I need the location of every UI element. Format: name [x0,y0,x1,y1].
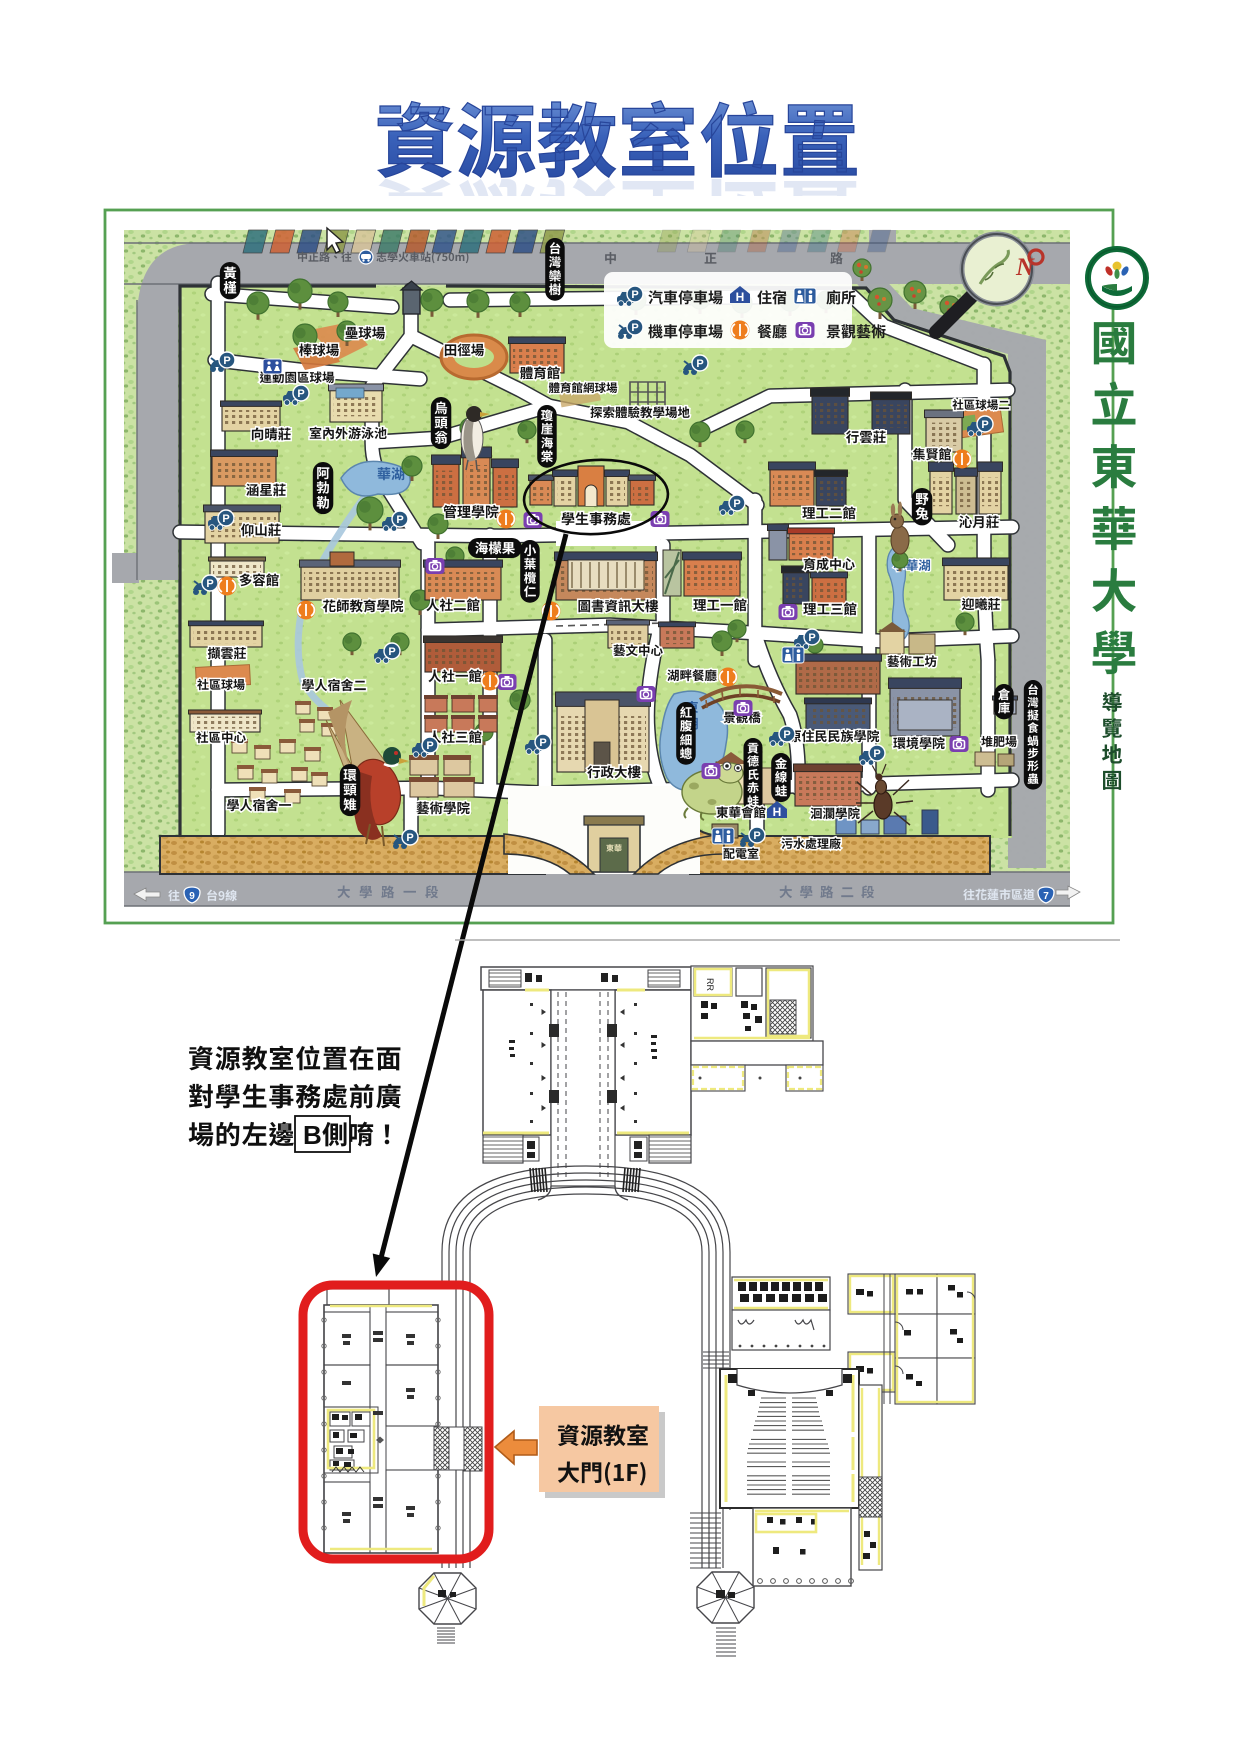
svg-text:仰山莊: 仰山莊 [241,519,282,539]
svg-text:正: 正 [704,248,717,267]
svg-text:大學路一段: 大學路一段 [337,881,447,901]
svg-text:探索體驗教學場地: 探索體驗教學場地 [590,402,691,421]
svg-text:東華: 東華 [606,843,622,854]
svg-text:P: P [873,748,880,760]
svg-text:野兔: 野兔 [915,488,929,523]
svg-text:金線蛙: 金線蛙 [775,753,788,799]
svg-text:對學生事務處前廣: 對學生事務處前廣 [188,1077,402,1114]
svg-text:側唷！: 側唷！ [322,1115,400,1152]
svg-text:導覽地圖: 導覽地圖 [1102,687,1123,795]
svg-text:P: P [223,355,230,367]
svg-text:7: 7 [1043,891,1049,902]
svg-text:黃槿: 黃槿 [223,262,237,297]
svg-text:人社一館: 人社一館 [428,665,482,685]
svg-text:P: P [808,632,815,644]
svg-text:藝術工坊: 藝術工坊 [887,651,938,670]
svg-text:資源教室: 資源教室 [557,1417,649,1451]
svg-text:行雲莊: 行雲莊 [846,426,887,446]
svg-text:倉庫: 倉庫 [998,684,1011,717]
svg-text:國立東華大學: 國立東華大學 [1091,305,1138,684]
svg-text:P: P [206,578,213,590]
svg-text:藝文中心: 藝文中心 [613,640,664,659]
svg-text:環境學院: 環境學院 [893,733,945,752]
svg-text:P: P [733,498,740,510]
svg-text:涵星莊: 涵星莊 [246,479,287,499]
svg-text:社區球場二: 社區球場二 [952,397,1010,413]
svg-text:體育館: 體育館 [520,362,561,382]
svg-text:中正路、往: 中正路、往 [297,249,352,265]
svg-text:P: P [388,646,395,658]
svg-text:理工一館: 理工一館 [693,594,747,614]
svg-text:小葉欖仁: 小葉欖仁 [524,540,537,600]
svg-text:汽車停車場: 汽車停車場 [648,287,723,308]
svg-text:P: P [297,388,304,400]
svg-text:機車停車場: 機車停車場 [648,321,723,342]
svg-text:住宿: 住宿 [757,287,787,308]
svg-text:大門(1F): 大門(1F) [557,1454,647,1488]
svg-text:9: 9 [189,891,195,902]
svg-text:P: P [783,729,790,741]
svg-text:P: P [426,740,433,752]
svg-text:行政大樓: 行政大樓 [587,761,641,781]
svg-text:棒球場: 棒球場 [299,339,340,359]
svg-text:P: P [406,832,413,844]
svg-text:花師教育學院: 花師教育學院 [323,595,404,615]
svg-text:室內外游泳池: 室內外游泳池 [309,423,387,442]
svg-text:迎曦莊: 迎曦莊 [961,594,1000,613]
svg-text:烏頭翁: 烏頭翁 [434,397,448,446]
svg-text:路: 路 [830,248,843,267]
svg-text:社區球場: 社區球場 [197,676,245,693]
svg-text:台9線: 台9線 [206,887,237,904]
svg-text:集賢館: 集賢館 [912,444,951,463]
svg-text:理工三館: 理工三館 [803,598,857,618]
svg-text:中: 中 [604,248,617,267]
svg-text:華湖: 華湖 [377,464,405,484]
svg-text:P: P [396,514,403,526]
svg-text:台灣欒樹: 台灣欒樹 [549,238,562,298]
svg-text:P: P [753,830,760,842]
svg-text:H: H [773,805,782,819]
svg-text:往: 往 [168,887,180,904]
svg-text:多容館: 多容館 [239,569,280,589]
svg-text:P: P [631,289,638,301]
svg-text:擷雲莊: 擷雲莊 [207,643,246,662]
svg-text:阿勃勒: 阿勃勒 [316,462,330,511]
svg-text:理工二館: 理工二館 [802,502,856,522]
svg-text:東華會館: 東華會館 [716,802,766,821]
svg-text:圖書資訊大樓: 圖書資訊大樓 [578,595,659,615]
svg-text:原住民民族學院: 原住民民族學院 [788,726,879,745]
svg-text:沁月莊: 沁月莊 [959,511,1000,531]
svg-text:P: P [981,419,988,431]
svg-text:紅腹細蟌: 紅腹細蟌 [680,702,693,762]
svg-text:RR: RR [705,978,715,991]
svg-text:管理學院: 管理學院 [443,502,499,522]
svg-text:資源教室位置在面: 資源教室位置在面 [188,1039,402,1076]
svg-text:貢德氏赤蛙: 貢德氏赤蛙 [747,740,759,810]
svg-text:志學火車站(750m): 志學火車站(750m) [376,249,469,265]
svg-text:堆肥場: 堆肥場 [981,733,1017,750]
svg-text:配電室: 配電室 [723,845,759,862]
svg-text:大學路二段: 大學路二段 [779,881,882,901]
svg-text:海檬果: 海檬果 [475,537,516,557]
svg-text:B: B [303,1120,322,1150]
svg-text:育成中心: 育成中心 [803,554,855,573]
svg-text:H: H [736,290,745,304]
svg-text:社區中心: 社區中心 [196,727,247,746]
svg-text:田徑場: 田徑場 [444,339,485,359]
svg-text:P: P [222,513,229,525]
svg-text:學人宿舍一: 學人宿舍一 [226,795,291,814]
svg-text:學人宿舍二: 學人宿舍二 [301,675,366,694]
svg-text:湖畔餐廳: 湖畔餐廳 [667,665,718,684]
svg-text:壘球場: 壘球場 [345,322,386,342]
svg-text:P: P [631,322,638,334]
svg-text:廁所: 廁所 [826,287,856,308]
svg-text:人社二館: 人社二館 [426,594,480,614]
svg-text:P: P [696,358,703,370]
svg-text:環頸雉: 環頸雉 [343,764,357,813]
svg-text:餐廳: 餐廳 [757,321,787,342]
svg-text:洄瀾學院: 洄瀾學院 [810,803,861,822]
svg-text:瓊崖海棠: 瓊崖海棠 [541,405,554,465]
svg-text:向晴莊: 向晴莊 [251,423,292,443]
svg-text:污水處理廠: 污水處理廠 [781,835,841,852]
svg-text:體育館網球場: 體育館網球場 [549,380,618,396]
svg-text:P: P [539,737,546,749]
svg-text:藝術學院: 藝術學院 [416,797,470,817]
svg-text:場的左邊: 場的左邊 [188,1115,295,1152]
svg-text:往花蓮市區道: 往花蓮市區道 [963,886,1035,903]
svg-text:N: N [1015,254,1035,281]
svg-text:景觀藝術: 景觀藝術 [826,321,886,342]
svg-text:台灣擬食蝸步形蟲: 台灣擬食蝸步形蟲 [1027,682,1039,787]
svg-text:學生事務處: 學生事務處 [561,509,631,529]
